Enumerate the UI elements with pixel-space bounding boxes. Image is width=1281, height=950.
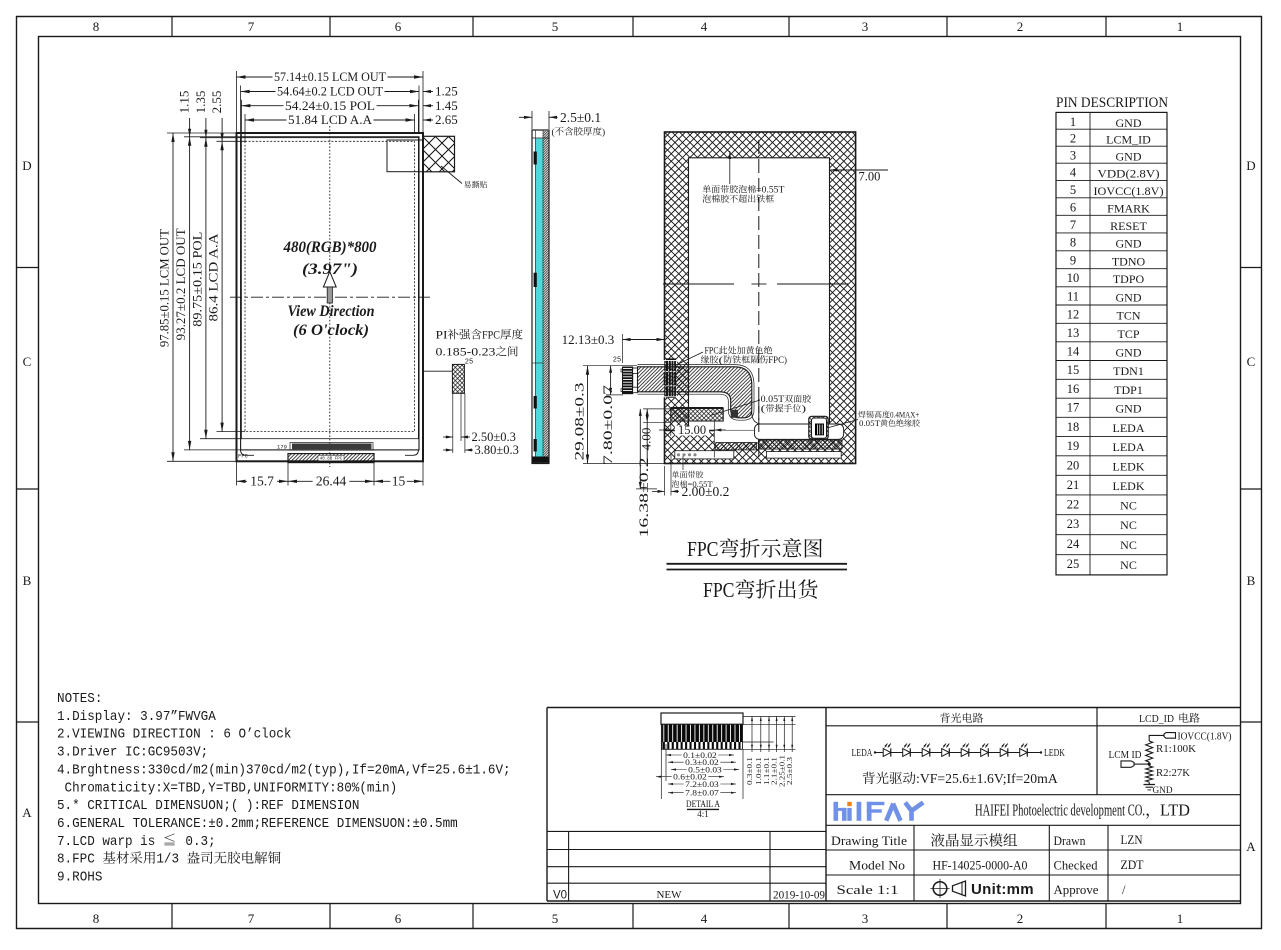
svg-text:IOVCC(1.8V): IOVCC(1.8V) — [1094, 184, 1164, 198]
svg-text:5: 5 — [552, 911, 559, 926]
svg-text:(: ( — [552, 127, 555, 138]
svg-text:TDP1: TDP1 — [1114, 383, 1143, 397]
svg-text:6: 6 — [395, 19, 402, 34]
svg-text:FPC: FPC — [705, 346, 719, 356]
svg-text:2.5±0.1: 2.5±0.1 — [560, 110, 601, 125]
svg-text:NC: NC — [1120, 498, 1137, 512]
svg-text:Chromaticity:X=TBD,Y=TBD,UNIFO: Chromaticity:X=TBD,Y=TBD,UNIFORMITY:80%(… — [65, 780, 398, 796]
svg-text:4.Brghtness:330cd/m2(min)370cd: 4.Brghtness:330cd/m2(min)370cd/m2(typ),I… — [57, 762, 511, 778]
svg-text:R2:27K: R2:27K — [1156, 768, 1191, 779]
svg-text:Model No: Model No — [849, 859, 905, 873]
svg-text:4:1: 4:1 — [697, 809, 709, 819]
svg-text:1.15: 1.15 — [177, 91, 192, 114]
svg-text:12: 12 — [1067, 307, 1080, 321]
svg-text:FPC: FPC — [482, 330, 500, 342]
svg-text:HF-14025-0000-A0: HF-14025-0000-A0 — [933, 859, 1028, 873]
svg-text:54.24±0.15 POL: 54.24±0.15 POL — [285, 98, 375, 113]
svg-text:R1:100K: R1:100K — [1156, 744, 1197, 755]
svg-text:3: 3 — [862, 911, 869, 926]
svg-text:GND: GND — [1153, 786, 1173, 796]
svg-text:13: 13 — [1067, 326, 1080, 340]
svg-text::VF=25.6±1.6V;If=20mA: :VF=25.6±1.6V;If=20mA — [916, 771, 1058, 786]
svg-text:FPC: FPC — [238, 453, 249, 460]
svg-text:86.4 LCD A.A: 86.4 LCD A.A — [206, 233, 221, 322]
svg-text:B: B — [1247, 573, 1256, 588]
svg-text:TCP: TCP — [1117, 327, 1139, 341]
svg-text:7.8±0.07: 7.8±0.07 — [685, 789, 719, 798]
svg-text:23: 23 — [1067, 517, 1080, 531]
svg-text:2.55: 2.55 — [209, 91, 224, 114]
svg-text:6: 6 — [395, 911, 402, 926]
svg-text:PI: PI — [436, 330, 448, 342]
svg-text:FPC): FPC) — [768, 355, 787, 365]
svg-text:1.25: 1.25 — [435, 84, 458, 99]
svg-text:4: 4 — [701, 19, 708, 34]
svg-text:97.85±0.15 LCM OUT: 97.85±0.15 LCM OUT — [157, 229, 172, 347]
svg-text:0.4MAX+: 0.4MAX+ — [890, 411, 920, 420]
svg-text:16: 16 — [1067, 382, 1080, 396]
svg-text:Drawn: Drawn — [1054, 834, 1087, 848]
svg-text:RESET: RESET — [1110, 219, 1147, 233]
svg-text:GND: GND — [1116, 236, 1142, 250]
svg-text:5: 5 — [1070, 183, 1076, 197]
svg-text:FMARK: FMARK — [1107, 201, 1150, 215]
svg-text:93.27±0.2 LCD OUT: 93.27±0.2 LCD OUT — [173, 228, 188, 340]
svg-text:4: 4 — [1070, 166, 1077, 180]
svg-text:7.00: 7.00 — [859, 170, 881, 184]
svg-text:): ) — [801, 404, 806, 414]
svg-text:2: 2 — [1017, 19, 1024, 34]
svg-text:Approve: Approve — [1054, 883, 1099, 897]
svg-text:3: 3 — [862, 19, 869, 34]
svg-text:89.75±0.15 POL: 89.75±0.15 POL — [189, 232, 204, 327]
svg-text:4: 4 — [701, 911, 708, 926]
svg-text:17: 17 — [1067, 401, 1080, 415]
svg-text:6.GENERAL TOLERANCE:±0.2mm;REF: 6.GENERAL TOLERANCE:±0.2mm;REFERENCE DIM… — [57, 817, 458, 832]
svg-text:16.38±0.2: 16.38±0.2 — [636, 458, 651, 538]
svg-text:LZN: LZN — [1121, 833, 1143, 847]
svg-text:57.14±0.15 LCM OUT: 57.14±0.15 LCM OUT — [274, 69, 386, 84]
svg-text:(: ( — [719, 355, 724, 365]
svg-text:7: 7 — [1070, 218, 1076, 232]
svg-text:10: 10 — [1067, 271, 1080, 285]
svg-text:NC: NC — [1120, 538, 1137, 552]
svg-text:19: 19 — [1067, 439, 1080, 453]
svg-text:7: 7 — [248, 911, 255, 926]
svg-text:NC: NC — [1120, 518, 1137, 532]
svg-text:15: 15 — [1067, 363, 1080, 377]
svg-text:25: 25 — [1067, 557, 1080, 571]
svg-text:2.5±0.3: 2.5±0.3 — [785, 757, 794, 785]
svg-text:B: B — [23, 573, 32, 588]
svg-text:14: 14 — [1067, 344, 1080, 358]
svg-text:26.44: 26.44 — [316, 474, 347, 489]
svg-text:LEDK: LEDK — [1044, 748, 1066, 759]
svg-text:2.VIEWING DIRECTION : 6 O’cloc: 2.VIEWING DIRECTION : 6 O’clock — [57, 727, 291, 743]
svg-text:TDNO: TDNO — [1112, 254, 1146, 268]
svg-text:C: C — [1247, 354, 1256, 369]
svg-text:0.3±0.1: 0.3±0.1 — [745, 757, 754, 785]
svg-text:Checked: Checked — [1054, 859, 1099, 873]
svg-text:D: D — [22, 158, 31, 173]
svg-text:40.8B FPC: 40.8B FPC — [320, 458, 343, 462]
svg-text:12.13±0.3: 12.13±0.3 — [562, 332, 615, 347]
svg-text:18: 18 — [1067, 420, 1080, 434]
svg-text:2: 2 — [1017, 911, 1024, 926]
svg-text:8: 8 — [93, 911, 100, 926]
svg-text:2.50±0.3: 2.50±0.3 — [472, 430, 516, 444]
svg-text:7: 7 — [248, 19, 255, 34]
svg-text:LCM ID: LCM ID — [1109, 750, 1142, 761]
svg-text:): ) — [602, 127, 605, 138]
svg-text:LTD: LTD — [1160, 801, 1190, 820]
svg-text:NC: NC — [1120, 558, 1137, 572]
svg-text:1: 1 — [1177, 19, 1184, 34]
svg-text:15: 15 — [392, 474, 406, 489]
svg-text:15.00: 15.00 — [678, 423, 706, 437]
svg-text:GND: GND — [1116, 402, 1142, 416]
svg-text:2.65: 2.65 — [435, 112, 458, 127]
svg-text:480(RGB)*800: 480(RGB)*800 — [283, 239, 377, 256]
svg-text:5.* CRITICAL DIMENSUON;( ):REF: 5.* CRITICAL DIMENSUON;( ):REF DIMENSION — [57, 798, 359, 814]
svg-text:1.45: 1.45 — [435, 98, 458, 113]
svg-text:22: 22 — [1067, 497, 1080, 511]
svg-text:54.64±0.2 LCD OUT: 54.64±0.2 LCD OUT — [277, 84, 383, 99]
svg-text:7.LCD warp is: 7.LCD warp is — [57, 834, 163, 850]
svg-text:TCN: TCN — [1117, 308, 1141, 322]
svg-text:Unit:mm: Unit:mm — [971, 881, 1034, 898]
svg-text:A: A — [22, 805, 32, 820]
svg-text:2: 2 — [1070, 132, 1076, 146]
svg-text:GND: GND — [1116, 290, 1142, 304]
svg-text:A: A — [1246, 839, 1256, 854]
svg-text:2019-10-09: 2019-10-09 — [773, 888, 825, 902]
svg-text:0.05T: 0.05T — [859, 419, 880, 428]
svg-text:6: 6 — [1070, 200, 1076, 214]
svg-text:LEDA: LEDA — [852, 748, 874, 759]
svg-text:VDD(2.8V): VDD(2.8V) — [1098, 167, 1160, 181]
svg-text:LEDA: LEDA — [1113, 440, 1145, 454]
svg-text:LEDK: LEDK — [1113, 459, 1145, 473]
svg-text:FPC: FPC — [703, 578, 735, 602]
svg-text:(6 O'clock): (6 O'clock) — [293, 322, 369, 339]
svg-text:ZDT: ZDT — [1121, 858, 1144, 872]
svg-text:0.3;: 0.3; — [178, 835, 216, 850]
svg-text:0.185-0.23: 0.185-0.23 — [436, 347, 496, 359]
svg-text:LCD_ID: LCD_ID — [1139, 713, 1174, 725]
svg-text:3.Driver IC:GC9503V;: 3.Driver IC:GC9503V; — [57, 745, 208, 761]
svg-text:HAIFEI Photoelectric developme: HAIFEI Photoelectric development CO. — [975, 801, 1145, 820]
svg-text:GND: GND — [1116, 116, 1142, 130]
svg-text:D: D — [1246, 158, 1255, 173]
svg-text:29.08±0.3: 29.08±0.3 — [573, 383, 587, 461]
svg-text:LEDA: LEDA — [1113, 421, 1145, 435]
svg-text:9: 9 — [1070, 253, 1076, 267]
svg-text:1.Display: 3.97”FWVGA: 1.Display: 3.97”FWVGA — [57, 709, 216, 725]
svg-text:LEDK: LEDK — [1113, 479, 1145, 493]
svg-text:2.00±0.2: 2.00±0.2 — [682, 484, 730, 499]
svg-text:11: 11 — [1067, 289, 1079, 303]
svg-text:1.35: 1.35 — [193, 91, 208, 114]
svg-text:GND: GND — [1116, 345, 1142, 359]
svg-text:=0.55T: =0.55T — [756, 185, 785, 195]
svg-text:3: 3 — [1070, 149, 1076, 163]
svg-text:1: 1 — [1070, 115, 1076, 129]
svg-text:NEW: NEW — [656, 889, 682, 901]
svg-text:1: 1 — [1177, 911, 1184, 926]
svg-text:20: 20 — [1067, 458, 1080, 472]
svg-text:51.84 LCD A.A: 51.84 LCD A.A — [288, 112, 373, 127]
svg-text:IOVCC(1.8V): IOVCC(1.8V) — [1178, 731, 1232, 743]
svg-text:21: 21 — [1067, 478, 1080, 492]
svg-text:7.2±0.03: 7.2±0.03 — [685, 780, 719, 789]
svg-text:8: 8 — [1070, 235, 1076, 249]
svg-text:GND: GND — [1116, 150, 1142, 164]
svg-text:8: 8 — [93, 19, 100, 34]
svg-text:25: 25 — [465, 359, 473, 367]
svg-text:0.05T: 0.05T — [761, 394, 785, 404]
svg-text:TDPO: TDPO — [1113, 272, 1145, 286]
svg-text:24: 24 — [1067, 537, 1080, 551]
svg-text:8.FPC: 8.FPC — [57, 853, 102, 868]
svg-text:Drawing Title: Drawing Title — [831, 834, 907, 848]
svg-text:Scale 1:1: Scale 1:1 — [837, 883, 899, 897]
svg-text:3.80±0.3: 3.80±0.3 — [475, 443, 519, 457]
svg-text:View Direction: View Direction — [288, 303, 375, 320]
svg-text:15.7: 15.7 — [250, 474, 274, 489]
svg-text:5: 5 — [552, 19, 559, 34]
svg-text:NOTES:: NOTES: — [57, 692, 102, 707]
svg-text:179: 179 — [277, 444, 287, 451]
svg-text:V0: V0 — [553, 890, 567, 902]
svg-text:C: C — [23, 354, 32, 369]
svg-text:PIN DESCRIPTION: PIN DESCRIPTION — [1056, 95, 1168, 111]
svg-text:/: / — [1122, 883, 1126, 897]
svg-text:25: 25 — [613, 357, 621, 365]
svg-text:TDN1: TDN1 — [1113, 364, 1144, 378]
svg-text:LCM_ID: LCM_ID — [1106, 133, 1151, 147]
svg-text:9.ROHS: 9.ROHS — [57, 871, 102, 886]
svg-text:7.80±0.07: 7.80±0.07 — [600, 384, 615, 465]
svg-text:FPC: FPC — [687, 537, 719, 561]
svg-text:(: ( — [761, 404, 766, 414]
svg-text:1/3: 1/3 — [156, 852, 186, 868]
